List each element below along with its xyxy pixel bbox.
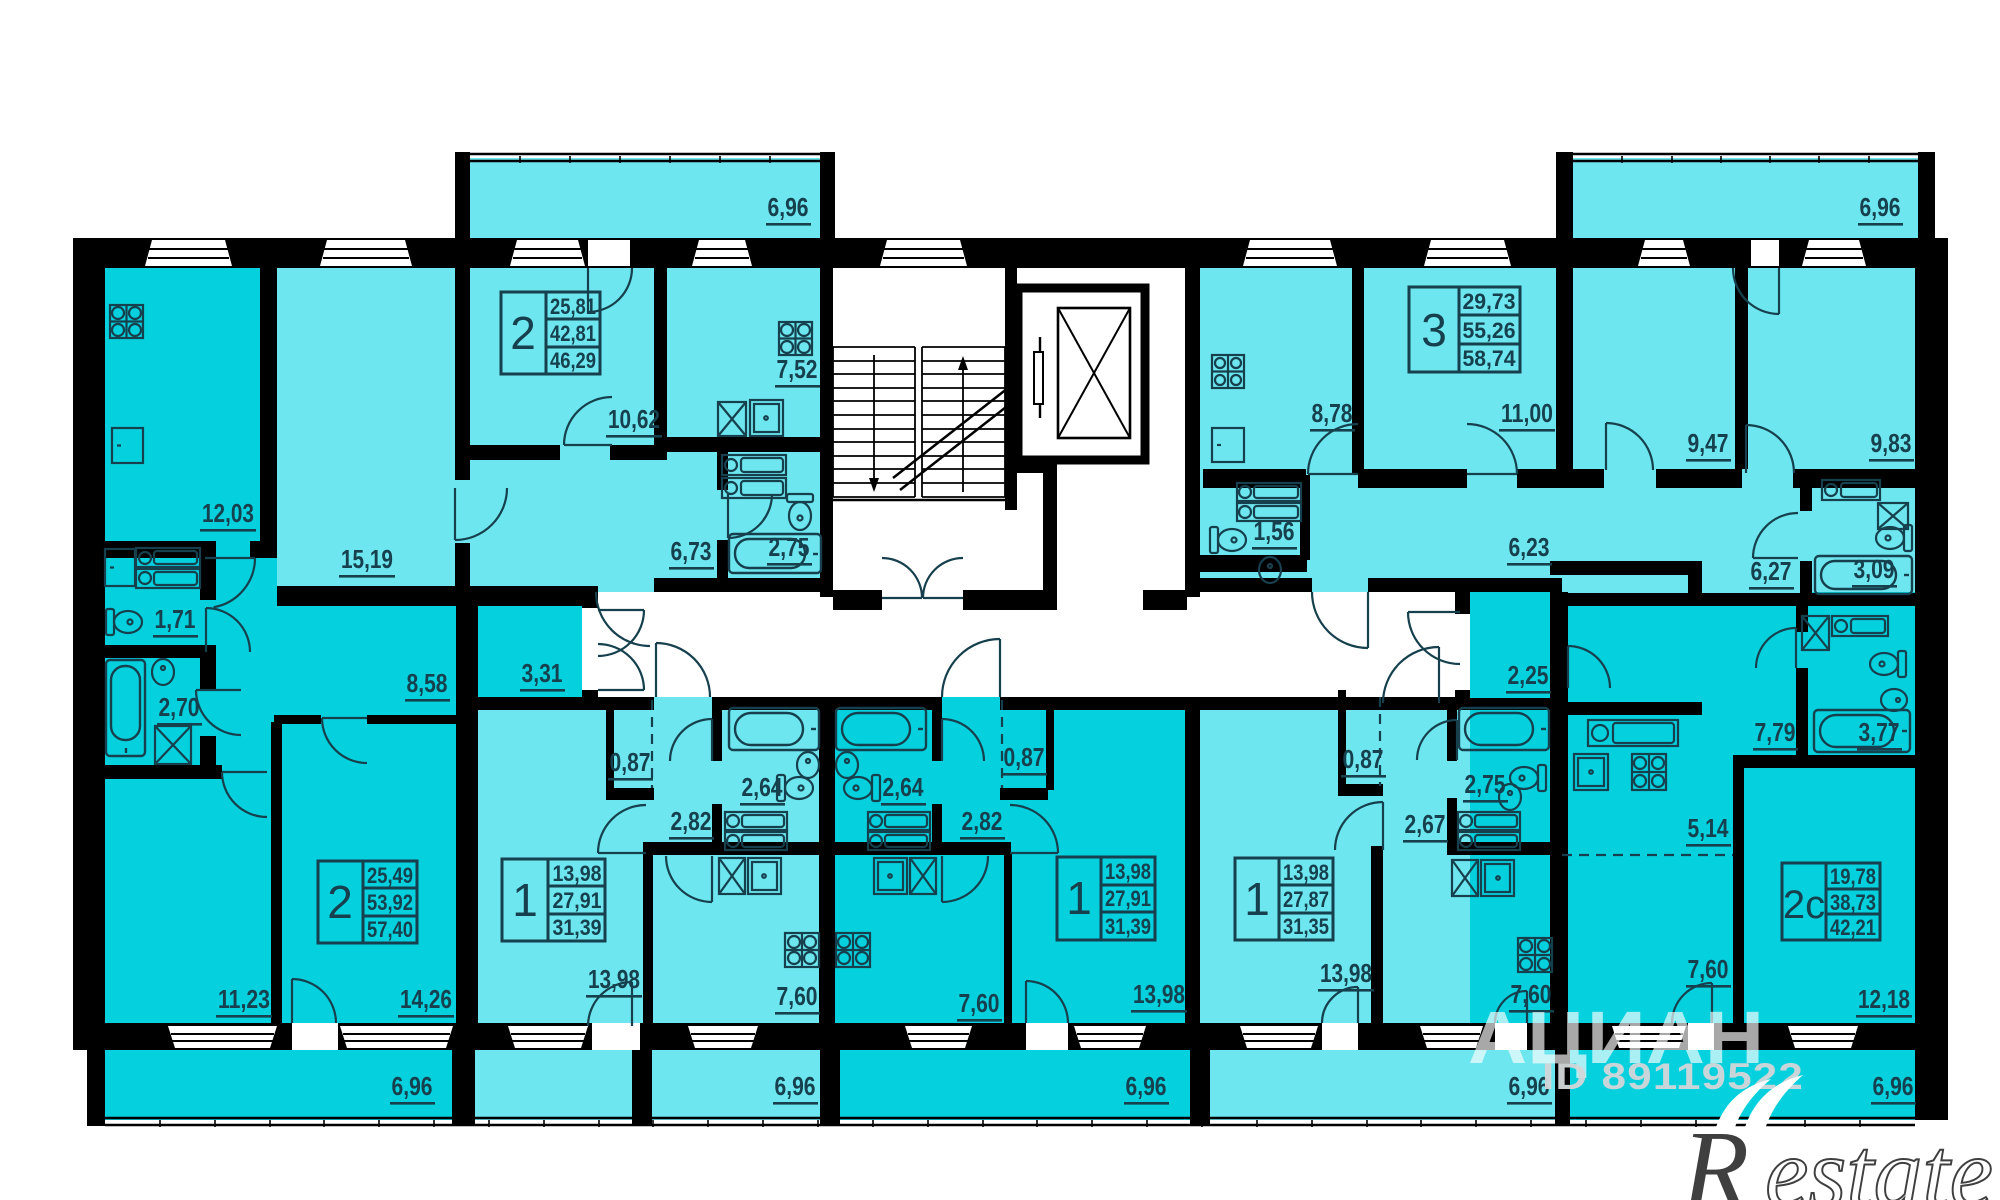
svg-text:13,98: 13,98 bbox=[1105, 859, 1151, 884]
svg-text:11,00: 11,00 bbox=[1501, 398, 1553, 428]
svg-text:42,81: 42,81 bbox=[550, 321, 596, 346]
svg-text:2: 2 bbox=[510, 307, 536, 359]
svg-text:2,25: 2,25 bbox=[1508, 660, 1549, 690]
svg-text:2,64: 2,64 bbox=[742, 772, 783, 802]
svg-text:27,91: 27,91 bbox=[553, 888, 602, 913]
svg-text:5,14: 5,14 bbox=[1688, 813, 1729, 843]
svg-text:7,60: 7,60 bbox=[959, 988, 1000, 1018]
svg-text:1: 1 bbox=[1244, 873, 1270, 925]
svg-text:14,26: 14,26 bbox=[400, 984, 452, 1014]
svg-text:13,98: 13,98 bbox=[1283, 860, 1329, 885]
svg-text:58,74: 58,74 bbox=[1463, 346, 1517, 371]
svg-text:12,18: 12,18 bbox=[1858, 984, 1910, 1014]
svg-text:38,73: 38,73 bbox=[1830, 890, 1876, 915]
svg-text:8,58: 8,58 bbox=[407, 668, 448, 698]
svg-text:2,75: 2,75 bbox=[769, 532, 810, 562]
svg-text:2,67: 2,67 bbox=[1405, 809, 1446, 839]
svg-text:2,82: 2,82 bbox=[671, 806, 712, 836]
svg-text:10,62: 10,62 bbox=[608, 404, 660, 434]
svg-text:42,21: 42,21 bbox=[1830, 915, 1876, 940]
svg-text:1: 1 bbox=[1066, 872, 1092, 924]
svg-text:2,70: 2,70 bbox=[159, 692, 200, 722]
svg-text:0,87: 0,87 bbox=[1343, 744, 1384, 774]
svg-text:25,49: 25,49 bbox=[367, 863, 413, 888]
svg-text:9,83: 9,83 bbox=[1871, 428, 1912, 458]
svg-text:2,75: 2,75 bbox=[1465, 769, 1506, 799]
svg-text:6,96: 6,96 bbox=[775, 1071, 816, 1101]
svg-text:estate: estate bbox=[1765, 1117, 1993, 1200]
svg-text:27,87: 27,87 bbox=[1283, 887, 1329, 912]
svg-text:57,40: 57,40 bbox=[367, 917, 413, 942]
svg-text:6,96: 6,96 bbox=[768, 192, 809, 222]
svg-text:R: R bbox=[1681, 1108, 1749, 1200]
svg-text:15,19: 15,19 bbox=[341, 544, 393, 574]
svg-text:2c: 2c bbox=[1783, 883, 1825, 927]
svg-text:6,73: 6,73 bbox=[671, 536, 712, 566]
svg-text:27,91: 27,91 bbox=[1105, 886, 1151, 911]
svg-text:29,73: 29,73 bbox=[1463, 289, 1516, 314]
svg-text:13,98: 13,98 bbox=[553, 861, 602, 886]
svg-text:9,47: 9,47 bbox=[1688, 428, 1729, 458]
svg-text:3,09: 3,09 bbox=[1854, 554, 1895, 584]
svg-text:6,96: 6,96 bbox=[1126, 1071, 1167, 1101]
svg-text:25,81: 25,81 bbox=[550, 294, 596, 319]
svg-text:6,96: 6,96 bbox=[1873, 1071, 1914, 1101]
svg-text:3,31: 3,31 bbox=[522, 658, 563, 688]
svg-text:7,60: 7,60 bbox=[777, 981, 818, 1011]
svg-text:2,82: 2,82 bbox=[962, 806, 1003, 836]
svg-text:7,79: 7,79 bbox=[1755, 717, 1796, 747]
svg-text:6,96: 6,96 bbox=[392, 1071, 433, 1101]
svg-text:1,71: 1,71 bbox=[155, 604, 196, 634]
svg-text:0,87: 0,87 bbox=[1004, 742, 1045, 772]
svg-text:ID 89119522: ID 89119522 bbox=[1542, 1056, 1804, 1097]
svg-text:55,26: 55,26 bbox=[1463, 318, 1516, 343]
svg-text:6,27: 6,27 bbox=[1751, 556, 1792, 586]
svg-text:2,64: 2,64 bbox=[883, 772, 924, 802]
svg-text:6,23: 6,23 bbox=[1509, 532, 1550, 562]
svg-text:3,77: 3,77 bbox=[1859, 717, 1900, 747]
svg-text:31,35: 31,35 bbox=[1283, 914, 1329, 939]
svg-text:11,23: 11,23 bbox=[218, 984, 270, 1014]
svg-text:0,87: 0,87 bbox=[610, 747, 651, 777]
svg-text:2: 2 bbox=[327, 876, 353, 928]
svg-text:13,98: 13,98 bbox=[1320, 958, 1372, 988]
svg-text:1: 1 bbox=[512, 874, 538, 926]
svg-text:7,52: 7,52 bbox=[777, 354, 818, 384]
svg-text:7,60: 7,60 bbox=[1688, 954, 1729, 984]
svg-text:13,98: 13,98 bbox=[1133, 979, 1185, 1009]
svg-text:3: 3 bbox=[1421, 304, 1447, 356]
svg-text:53,92: 53,92 bbox=[367, 890, 413, 915]
svg-text:8,78: 8,78 bbox=[1312, 398, 1353, 428]
svg-text:6,96: 6,96 bbox=[1860, 192, 1901, 222]
svg-text:19,78: 19,78 bbox=[1830, 864, 1876, 889]
svg-text:12,03: 12,03 bbox=[202, 498, 254, 528]
svg-text:46,29: 46,29 bbox=[550, 348, 596, 373]
svg-text:1,56: 1,56 bbox=[1254, 516, 1295, 546]
svg-text:13,98: 13,98 bbox=[588, 964, 640, 994]
svg-text:31,39: 31,39 bbox=[1105, 914, 1151, 939]
svg-text:31,39: 31,39 bbox=[553, 915, 602, 940]
